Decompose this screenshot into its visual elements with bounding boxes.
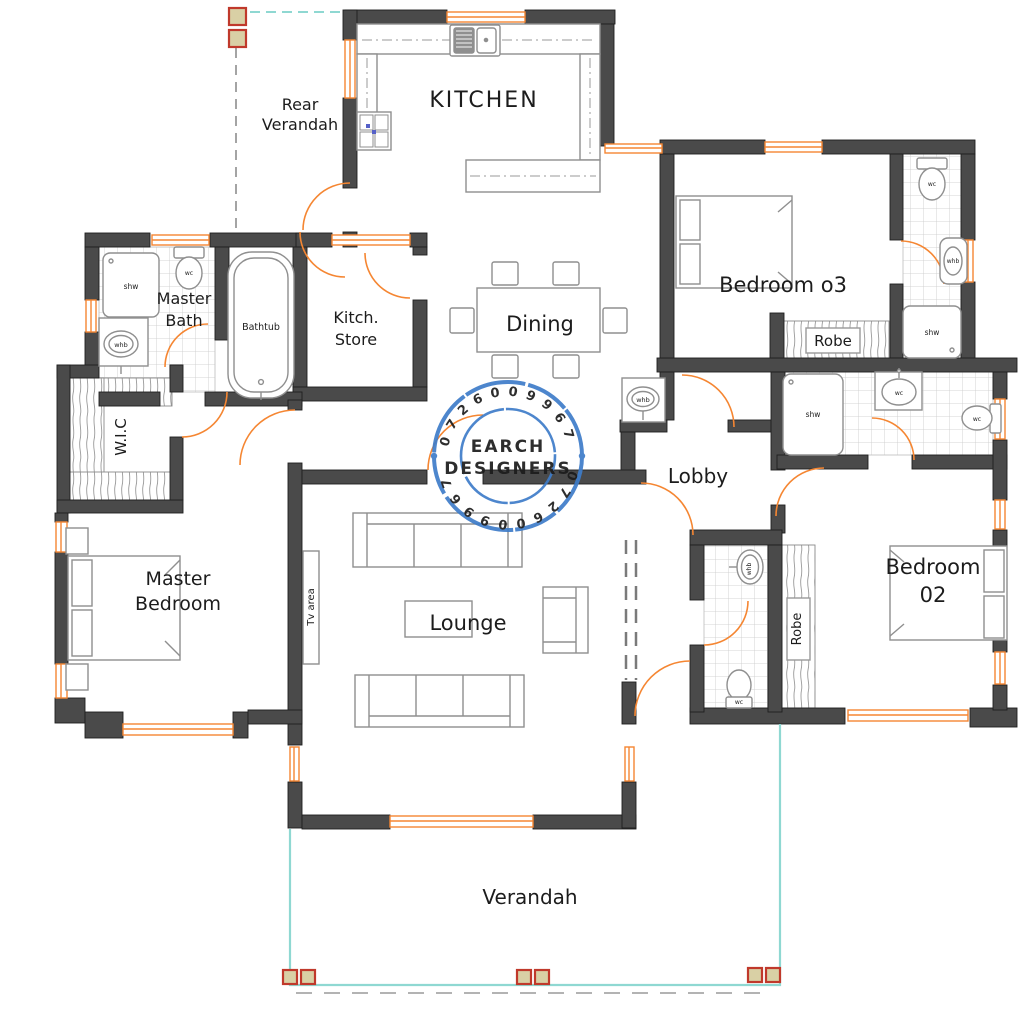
wall [660, 140, 765, 154]
window [86, 300, 96, 332]
wall [288, 463, 302, 745]
floor-plan-canvas: KITCHEN Rear Verandah Dining Master Bath… [0, 0, 1024, 1019]
wall [690, 708, 845, 724]
wall [770, 313, 784, 358]
column [766, 968, 780, 982]
wc-label: wc [895, 390, 903, 397]
wall [215, 247, 229, 340]
wall [85, 247, 99, 300]
dining-label: Dining [506, 312, 574, 336]
basin-symbol [875, 368, 922, 410]
kitch-store-label-1: Kitch. [333, 308, 378, 327]
window [390, 816, 533, 827]
wall [293, 387, 427, 401]
wall [890, 154, 903, 240]
whb-label: whb [746, 563, 753, 576]
window [447, 12, 525, 22]
window [625, 747, 634, 781]
stamp-dot-right [579, 453, 585, 459]
verandah-boundaries [236, 12, 780, 993]
shw-label: shw [925, 328, 940, 337]
whb-label: whb [114, 341, 128, 349]
door-arc [303, 183, 350, 230]
armchair [543, 587, 588, 653]
whb-label: whb [636, 396, 650, 404]
kitch-store-label-2: Store [335, 330, 377, 349]
wall [657, 358, 1017, 372]
wall [970, 708, 1017, 727]
wall [85, 332, 99, 367]
wall [525, 10, 615, 24]
wc-label: wc [973, 416, 981, 423]
wall [288, 400, 302, 410]
wall [993, 685, 1007, 710]
wall [345, 10, 447, 24]
wall [85, 233, 150, 247]
shw-label: shw [806, 410, 821, 419]
wall [660, 154, 674, 358]
wall [170, 437, 183, 500]
window [332, 235, 410, 245]
wall [410, 233, 427, 247]
bedroom3-label: Bedroom o3 [719, 273, 847, 297]
bedroom2-label-1: Bedroom [886, 555, 981, 579]
wall [302, 815, 390, 829]
door-arc [635, 661, 690, 716]
stamp-name-line1: EARCH [471, 437, 546, 457]
wall [288, 782, 302, 828]
wall [600, 24, 614, 146]
wc-label: wc [185, 270, 193, 277]
rear-verandah-label-2: Verandah [262, 115, 338, 134]
wall [690, 530, 782, 545]
room-labels: KITCHEN Rear Verandah Dining Master Bath… [112, 88, 980, 909]
wall [343, 10, 357, 40]
wall [690, 545, 704, 600]
stamp-name-line2: DESIGNERS [444, 459, 571, 479]
floor-plan-drawing: KITCHEN Rear Verandah Dining Master Bath… [0, 0, 1024, 1019]
wall [690, 645, 704, 712]
wall [55, 513, 68, 522]
toilet-symbol [917, 158, 947, 200]
tv-area-label: Tv area [306, 588, 317, 627]
sofa [355, 675, 524, 727]
wall [293, 247, 307, 387]
window [345, 40, 355, 98]
wall [170, 365, 183, 392]
window [995, 652, 1005, 684]
wall [768, 545, 782, 712]
master-bath-label-2: Bath [165, 311, 202, 330]
rear-verandah-label-1: Rear [282, 95, 319, 114]
wc-label: wc [928, 181, 936, 188]
wall [533, 815, 636, 829]
door-arc [365, 253, 410, 298]
bedroom2-label-2: 02 [920, 583, 947, 607]
robe3-label: Robe [814, 332, 852, 350]
wall [343, 98, 357, 188]
wall [961, 282, 975, 365]
front-verandah-line [290, 724, 780, 985]
stamp-dot-left [431, 453, 437, 459]
wall [248, 710, 302, 724]
column [517, 970, 531, 984]
whb-label: whb [947, 258, 960, 265]
column [283, 970, 297, 984]
wc-label: wc [735, 699, 743, 706]
designer-stamp: EARCH DESIGNERS 0726009967 0726009967 [431, 382, 585, 531]
stove-symbol [357, 112, 391, 150]
window [995, 500, 1005, 529]
wall [233, 712, 248, 738]
master-bedroom-label-1: Master [146, 568, 211, 590]
wall [993, 372, 1007, 399]
wall [210, 233, 302, 247]
wall [99, 392, 160, 406]
column [748, 968, 762, 982]
master-bath-label-1: Master [157, 289, 212, 308]
wall [622, 782, 636, 828]
window [290, 747, 299, 781]
robe2-label: Robe [790, 613, 805, 646]
door-arc [240, 410, 295, 465]
wall [302, 470, 427, 484]
wall [961, 154, 975, 240]
toilet-symbol [174, 247, 204, 289]
column [229, 8, 246, 25]
shw-label: shw [124, 282, 139, 291]
open-archway-dashes [626, 540, 636, 680]
lounge-label: Lounge [429, 611, 506, 635]
master-bedroom-label-2: Bedroom [135, 593, 221, 615]
wic-closet-bottom [68, 472, 172, 500]
lobby-label: Lobby [668, 464, 728, 488]
column [301, 970, 315, 984]
window [848, 710, 968, 721]
window [152, 235, 209, 245]
column [535, 970, 549, 984]
wall [622, 682, 636, 724]
window [123, 724, 233, 735]
window [765, 142, 822, 152]
wall [57, 365, 70, 513]
kitchen-sink [450, 25, 500, 56]
front-verandah-label: Verandah [482, 885, 577, 909]
wall [55, 698, 85, 723]
wall [55, 552, 68, 664]
wall [771, 505, 785, 533]
wall [822, 140, 975, 154]
door-arc [641, 483, 693, 535]
kitchen-label: KITCHEN [429, 88, 538, 113]
wall [413, 247, 427, 255]
wall [993, 440, 1007, 500]
door-arc [682, 375, 734, 427]
wall [57, 500, 183, 513]
wall [413, 300, 427, 387]
wic-label: W.I.C [112, 418, 130, 456]
wall [777, 455, 868, 469]
wall [85, 712, 123, 738]
column [229, 30, 246, 47]
bathtub-label: Bathtub [242, 322, 280, 333]
window [605, 144, 662, 153]
wall [890, 284, 903, 358]
wall [728, 420, 777, 432]
